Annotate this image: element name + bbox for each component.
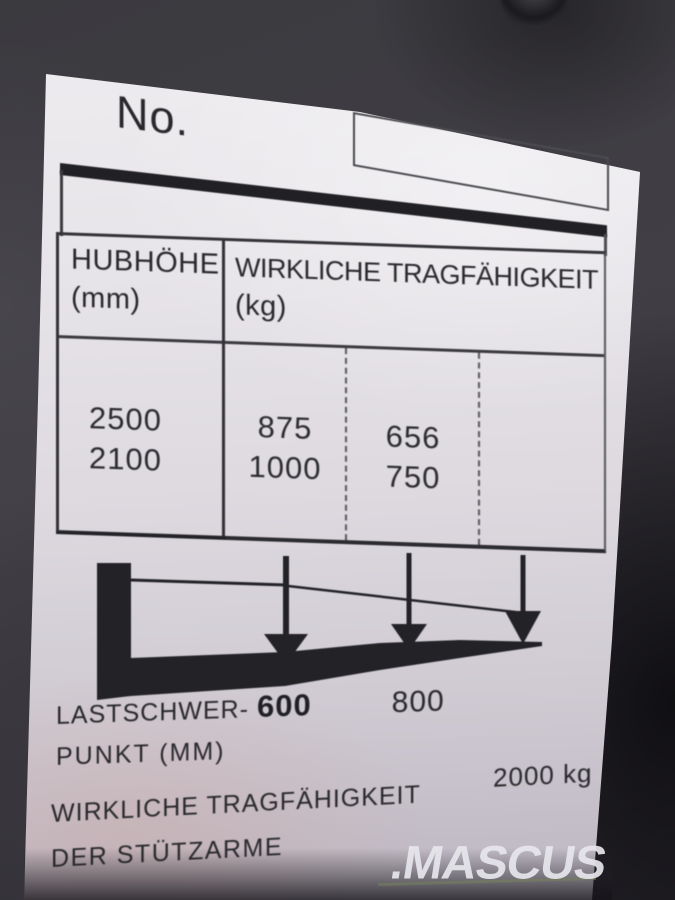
capacity-header-text: WIRKLICHE TRAGFÄHIGKEIT [235, 252, 598, 295]
table-header-divider [59, 335, 604, 357]
capacity-value: 1000 [249, 449, 322, 487]
serial-caption: No. [116, 86, 189, 147]
lift-height-value: 2100 [89, 440, 162, 478]
lift-height-header-text: HUBHÖHE [71, 244, 220, 281]
table-header-capacity: WIRKLICHE TRAGFÄHIGKEIT (kg) [235, 248, 598, 337]
mascus-watermark: .MASCUS [387, 837, 610, 891]
table-dashed-divider [478, 353, 480, 545]
lift-height-unit: (mm) [71, 282, 141, 316]
capacity-800-values: 656 750 [348, 415, 478, 500]
load-arrow-icon [505, 555, 541, 644]
photo-stage: No. HUBHÖHE (mm) WIRKLICHE TRAGFÄHIGKEIT… [0, 0, 675, 900]
support-arm-capacity-value: 2000 kg [493, 758, 593, 794]
outer-border-left [60, 170, 63, 236]
capacity-table: HUBHÖHE (mm) WIRKLICHE TRAGFÄHIGKEIT (kg… [56, 232, 606, 553]
capacity-value: 656 [386, 419, 441, 456]
capacity-value: 875 [258, 409, 313, 446]
load-center-value-600: 600 [257, 687, 312, 724]
lift-height-value: 2500 [89, 400, 162, 438]
lift-height-values: 2500 2100 [59, 397, 252, 484]
fork-top-line [131, 580, 286, 585]
table-dashed-divider [345, 348, 347, 540]
load-center-block: LASTSCHWER-600800 PUNKT (MM) [56, 682, 445, 772]
load-center-value-800: 800 [392, 684, 445, 719]
fork-profile-shape [97, 563, 542, 700]
capacity-slope-line [288, 586, 524, 613]
table-column-divider [222, 241, 225, 536]
table-header-lift-height: HUBHÖHE (mm) [71, 241, 220, 322]
capacity-600-values: 875 1000 [225, 406, 345, 490]
capacity-unit: (kg) [235, 289, 287, 323]
load-arrow-icon [264, 556, 308, 664]
load-center-label: LASTSCHWER- [56, 695, 249, 730]
capacity-value: 750 [386, 459, 441, 496]
